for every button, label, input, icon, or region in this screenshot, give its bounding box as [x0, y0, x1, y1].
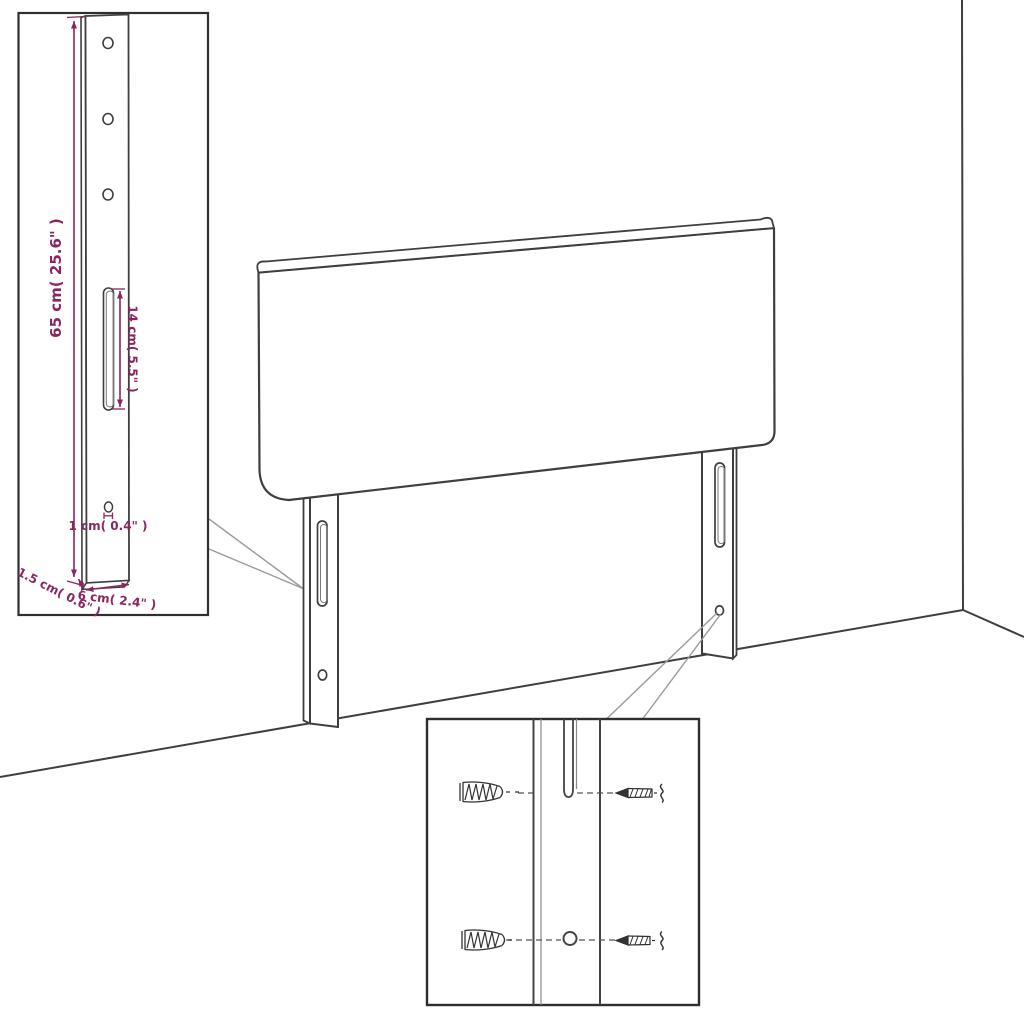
bracket-hole-1: [103, 38, 113, 49]
mounting-detail-inset: [427, 719, 699, 1005]
bracket-slot: [104, 288, 114, 410]
dim-leg-height-label: 65 cm( 25.6" ): [47, 218, 65, 338]
left-leg-slot: [318, 521, 328, 606]
detail-hole: [564, 932, 577, 945]
bracket-hole-3: [103, 189, 113, 200]
bracket-hole-2: [103, 114, 113, 125]
right-leg: [702, 440, 737, 659]
diagram-canvas: 65 cm( 25.6" ) 14 cm( 5.5" ) 1 cm( 0.4" …: [0, 0, 1024, 1024]
dim-hole-diameter-label: 1 cm( 0.4" ): [69, 519, 148, 533]
left-leg-hole: [318, 670, 326, 680]
left-leg: [304, 488, 339, 727]
bracket-small-hole: [105, 502, 113, 512]
leg-detail-inset: 65 cm( 25.6" ) 14 cm( 5.5" ) 1 cm( 0.4" …: [15, 13, 208, 619]
dim-slot-length-label: 14 cm( 5.5" ): [126, 305, 140, 392]
assembly-diagram: 65 cm( 25.6" ) 14 cm( 5.5" ) 1 cm( 0.4" …: [0, 0, 1024, 1024]
bracket-drawing: [81, 15, 129, 590]
wall-corner-vertical-line: [962, 0, 963, 610]
mounting-inset-border: [427, 719, 699, 1005]
right-leg-slot: [715, 463, 725, 547]
